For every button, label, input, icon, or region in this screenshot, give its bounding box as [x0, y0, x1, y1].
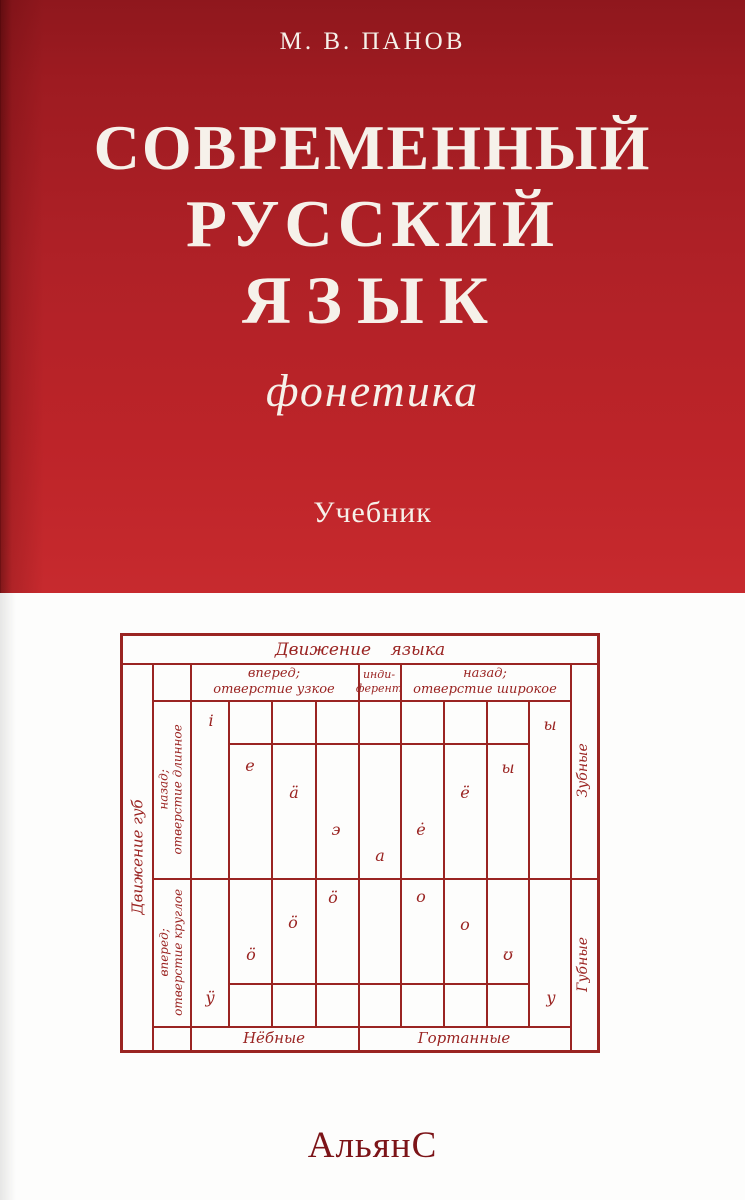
row-header-spread: назад; отверстие длинное: [152, 700, 190, 878]
spine-shadow: [0, 0, 60, 593]
vowel-glyph: ы: [501, 760, 514, 776]
vowel-chart: Движение языка вперед; отверстие узкое и…: [120, 633, 600, 1053]
grid-line: [190, 663, 192, 1050]
publisher-logo: АльянС: [0, 1124, 745, 1167]
cover-top-section: М. В. ПАНОВ СОВРЕМЕННЫЙ РУССКИЙ ЯЗЫК фон…: [0, 0, 745, 593]
bottom-label-palatal: Нёбные: [190, 1026, 358, 1050]
row-header-spread-line1: назад;: [157, 724, 171, 854]
column-header-indifferent-line2: ферент: [356, 682, 402, 695]
page-edge-shadow: [0, 593, 30, 1200]
author-name: М. В. ПАНОВ: [0, 28, 745, 56]
grid-line: [228, 983, 528, 985]
chart-title: Движение языка: [123, 636, 597, 663]
vowel-glyph: е: [245, 758, 254, 774]
grid-line: [228, 700, 230, 1026]
left-axis-label: Движение губ: [123, 663, 152, 1050]
grid-line: [152, 878, 597, 880]
right-label-labial: Губные: [570, 878, 597, 1050]
subtitle: фонетика: [0, 364, 745, 417]
grid-line: [528, 700, 530, 1026]
column-header-indifferent: инди- ферент: [358, 663, 400, 700]
vowel-glyph: ы: [543, 717, 556, 733]
column-header-back: назад; отверстие широкое: [400, 663, 570, 700]
right-label-dental: Зубные: [570, 663, 597, 878]
vowel-glyph: о: [416, 889, 426, 905]
spine-crease-line: [0, 0, 1, 593]
edition-label: Учебник: [0, 496, 745, 530]
row-header-rounded: вперед; отверстие круглое: [152, 878, 190, 1026]
grid-line: [152, 700, 570, 702]
grid-line: [271, 700, 273, 1026]
vowel-glyph: э: [332, 822, 341, 838]
vowel-glyph: ä: [289, 785, 299, 801]
vowel-glyph: ÿ: [205, 990, 214, 1006]
grid-line: [358, 663, 360, 1050]
vowel-glyph: а: [375, 848, 385, 864]
cover-bottom-section: Движение языка вперед; отверстие узкое и…: [0, 593, 745, 1200]
column-header-back-line2: отверстие широкое: [413, 682, 557, 698]
vowel-glyph: i: [208, 713, 213, 729]
column-header-front: вперед; отверстие узкое: [190, 663, 358, 700]
vowel-glyph: ö: [288, 915, 298, 931]
title-line-2: РУССКИЙ: [0, 191, 745, 258]
book-cover: М. В. ПАНОВ СОВРЕМЕННЫЙ РУССКИЙ ЯЗЫК фон…: [0, 0, 745, 1200]
grid-line: [315, 700, 317, 1026]
vowel-glyph: ö: [246, 947, 256, 963]
vowel-glyph: ė: [416, 822, 425, 838]
row-header-rounded-line2: отверстие круглое: [171, 889, 185, 1016]
title-line-1: СОВРЕМЕННЫЙ: [0, 116, 745, 180]
column-header-back-line1: назад;: [413, 666, 557, 682]
grid-line: [486, 700, 488, 1026]
vowel-glyph: у: [546, 990, 555, 1006]
column-header-indifferent-line1: инди-: [356, 668, 402, 681]
vowel-glyph: ӧ: [328, 890, 338, 906]
row-header-spread-line2: отверстие длинное: [171, 724, 185, 854]
title-line-3: ЯЗЫК: [0, 266, 745, 334]
grid-line: [400, 663, 402, 1026]
bottom-label-guttural: Гортанные: [358, 1026, 570, 1050]
grid-line: [443, 700, 445, 1026]
row-header-rounded-line1: вперед;: [157, 889, 171, 1016]
vowel-glyph: ʊ: [503, 947, 513, 963]
vowel-glyph: о: [460, 917, 470, 933]
column-header-front-line2: отверстие узкое: [213, 682, 334, 698]
vowel-glyph: ё: [460, 785, 469, 801]
column-header-front-line1: вперед;: [213, 666, 334, 682]
grid-line: [228, 743, 528, 745]
